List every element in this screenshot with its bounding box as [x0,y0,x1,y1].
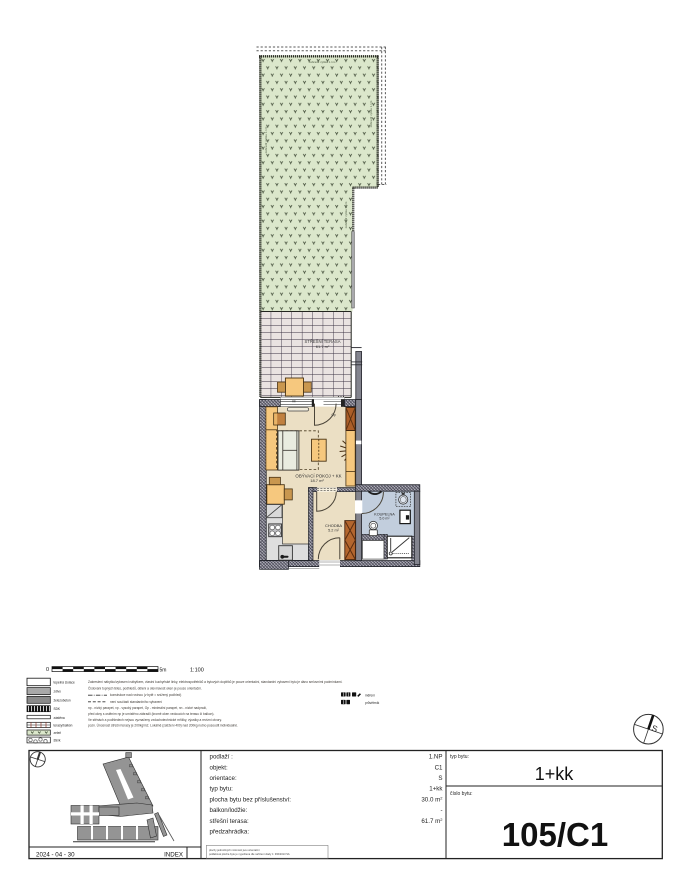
svg-text:Ve stěnách a podhledech nejsou: Ve stěnách a podhledech nejsou vyznačeny… [88,718,222,722]
svg-text:konstrukce nad rovinou (v bytě: konstrukce nad rovinou (v bytě = snížený… [110,693,181,697]
svg-text:orientace:: orientace: [210,775,237,782]
svg-text:objekt:: objekt: [210,764,229,771]
svg-text:balkon/lodžie:: balkon/lodžie: [210,807,248,814]
svg-text:plocha bytu bez příslušenství:: plocha bytu bez příslušenství: [210,796,292,803]
svg-text:měření: měření [365,693,375,697]
svg-text:typ bytu:: typ bytu: [450,754,469,760]
svg-text:číslo bytu:: číslo bytu: [450,791,473,797]
svg-text:Zakreslení nábytku/vybavení ná: Zakreslení nábytku/vybavení nábytkem, vl… [88,680,342,684]
svg-text:30.0 m2: 30.0 m2 [421,795,443,803]
svg-text:Číslování topných těles, podhl: Číslování topných těles, podhledů, dělen… [88,686,202,691]
svg-text:zdivo: zdivo [54,690,62,694]
svg-text:průvětrník: průvětrník [365,701,380,705]
svg-text:terasy/balkón: terasy/balkón [54,724,73,728]
svg-text:zábradlí výška 1.1m: zábradlí výška 1.1m [309,60,336,64]
svg-text:podlahová plocha bytu je vypoč: podlahová plocha bytu je vypočtena dle n… [209,852,290,856]
svg-text:5.2 m²: 5.2 m² [328,529,339,533]
svg-text:C1: C1 [435,764,443,771]
svg-text:zábradlí výška 1.1m: zábradlí výška 1.1m [264,126,268,153]
svg-text:zástěna: zástěna [54,716,65,720]
svg-text:zábradlí výška 1.1m: zábradlí výška 1.1m [369,100,373,127]
svg-text:2024 - 04 - 30: 2024 - 04 - 30 [36,851,75,858]
svg-text:0: 0 [46,667,49,673]
svg-text:np - nízký parapet, vp - vysok: np - nízký parapet, vp - vysoký parapet,… [88,706,207,710]
svg-text:podlaží :: podlaží : [210,754,234,761]
svg-text:5m: 5m [160,668,167,674]
svg-text:105/C1: 105/C1 [502,816,608,853]
svg-text:předzahrádka:: předzahrádka: [210,829,250,836]
svg-text:zeleň: zeleň [54,731,62,735]
svg-text:železobeton: železobeton [54,698,71,702]
svg-text:typ bytu:: typ bytu: [210,786,234,793]
svg-text:1:100: 1:100 [190,668,204,674]
svg-text:5.0 m²: 5.0 m² [379,517,390,521]
svg-text:61.7 m²: 61.7 m² [316,344,330,349]
svg-text:štěrk: štěrk [54,739,61,743]
svg-text:plochy jednotlivých místností: plochy jednotlivých místností jsou orien… [209,848,260,852]
svg-text:Op: Op [332,413,336,417]
svg-text:1+kk: 1+kk [535,764,575,784]
svg-text:INDEX: INDEX [164,851,183,858]
svg-text:tepelná izolace: tepelná izolace [54,681,75,685]
svg-text:18.7 m²: 18.7 m² [310,478,324,483]
svg-text:SDK: SDK [54,707,61,711]
svg-text:1+kk: 1+kk [429,786,443,793]
svg-text:střešní terasa:: střešní terasa: [210,818,249,825]
svg-text:zábradlí výška 1.1m: zábradlí výška 1.1m [344,201,348,228]
svg-text:CHODBA: CHODBA [325,523,342,528]
svg-text:před okny s ostěním np je umís: před okny s ostěním np je umístěno zábra… [88,712,214,716]
svg-text:není součástí standardního vyb: není součástí standardního vybavení [110,700,162,704]
svg-text:61.7 m2: 61.7 m2 [421,817,443,825]
svg-text:-: - [440,807,442,814]
svg-text:S: S [438,775,442,782]
svg-text:pozn. Únosnost střešní terasy: pozn. Únosnost střešní terasy je 200kg/m… [88,723,238,728]
svg-text:1.NP: 1.NP [429,754,443,761]
